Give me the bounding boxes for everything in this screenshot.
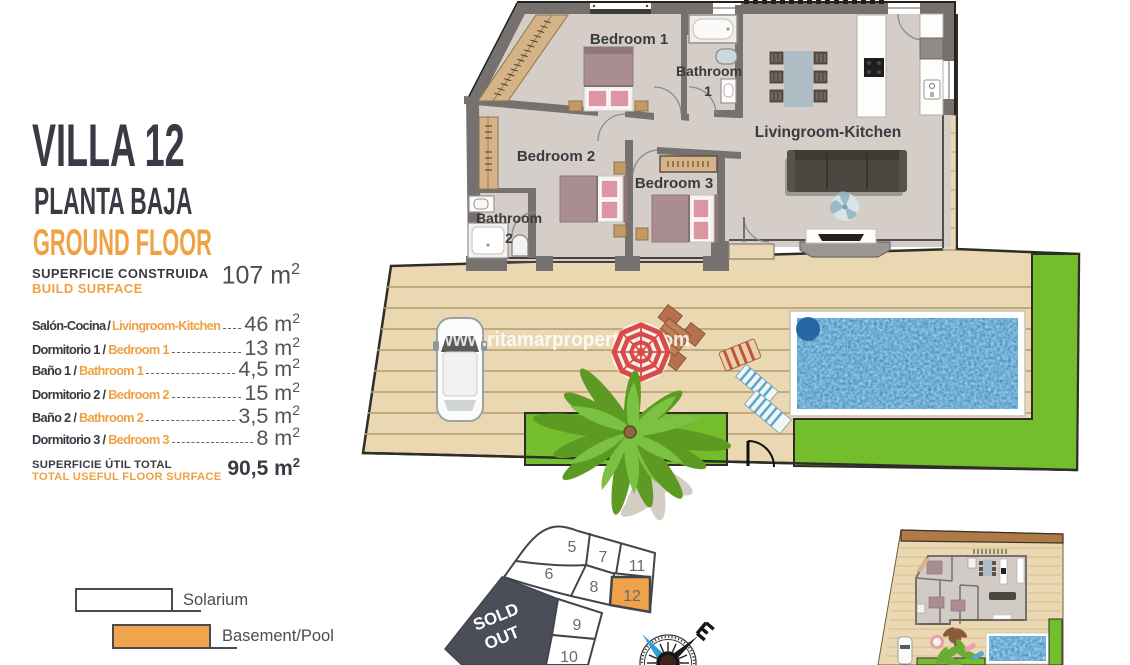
svg-text:Bathroom: Bathroom xyxy=(676,63,742,79)
svg-text:9: 9 xyxy=(573,617,582,634)
svg-text:7: 7 xyxy=(599,549,608,566)
svg-text:Bedroom 2: Bedroom 2 xyxy=(517,148,595,165)
svg-text:Livingroom-Kitchen: Livingroom-Kitchen xyxy=(755,124,901,141)
svg-text:6: 6 xyxy=(545,566,554,583)
svg-text:12: 12 xyxy=(623,588,641,605)
svg-text:2: 2 xyxy=(505,230,513,246)
svg-text:5: 5 xyxy=(568,539,577,556)
svg-text:10: 10 xyxy=(560,649,578,665)
svg-text:1: 1 xyxy=(704,83,712,99)
svg-text:11: 11 xyxy=(629,558,646,575)
svg-text:Bedroom 3: Bedroom 3 xyxy=(635,175,713,192)
svg-text:8: 8 xyxy=(590,579,599,596)
svg-text:Bedroom 1: Bedroom 1 xyxy=(590,31,668,48)
svg-text:Bathroom: Bathroom xyxy=(476,210,542,226)
